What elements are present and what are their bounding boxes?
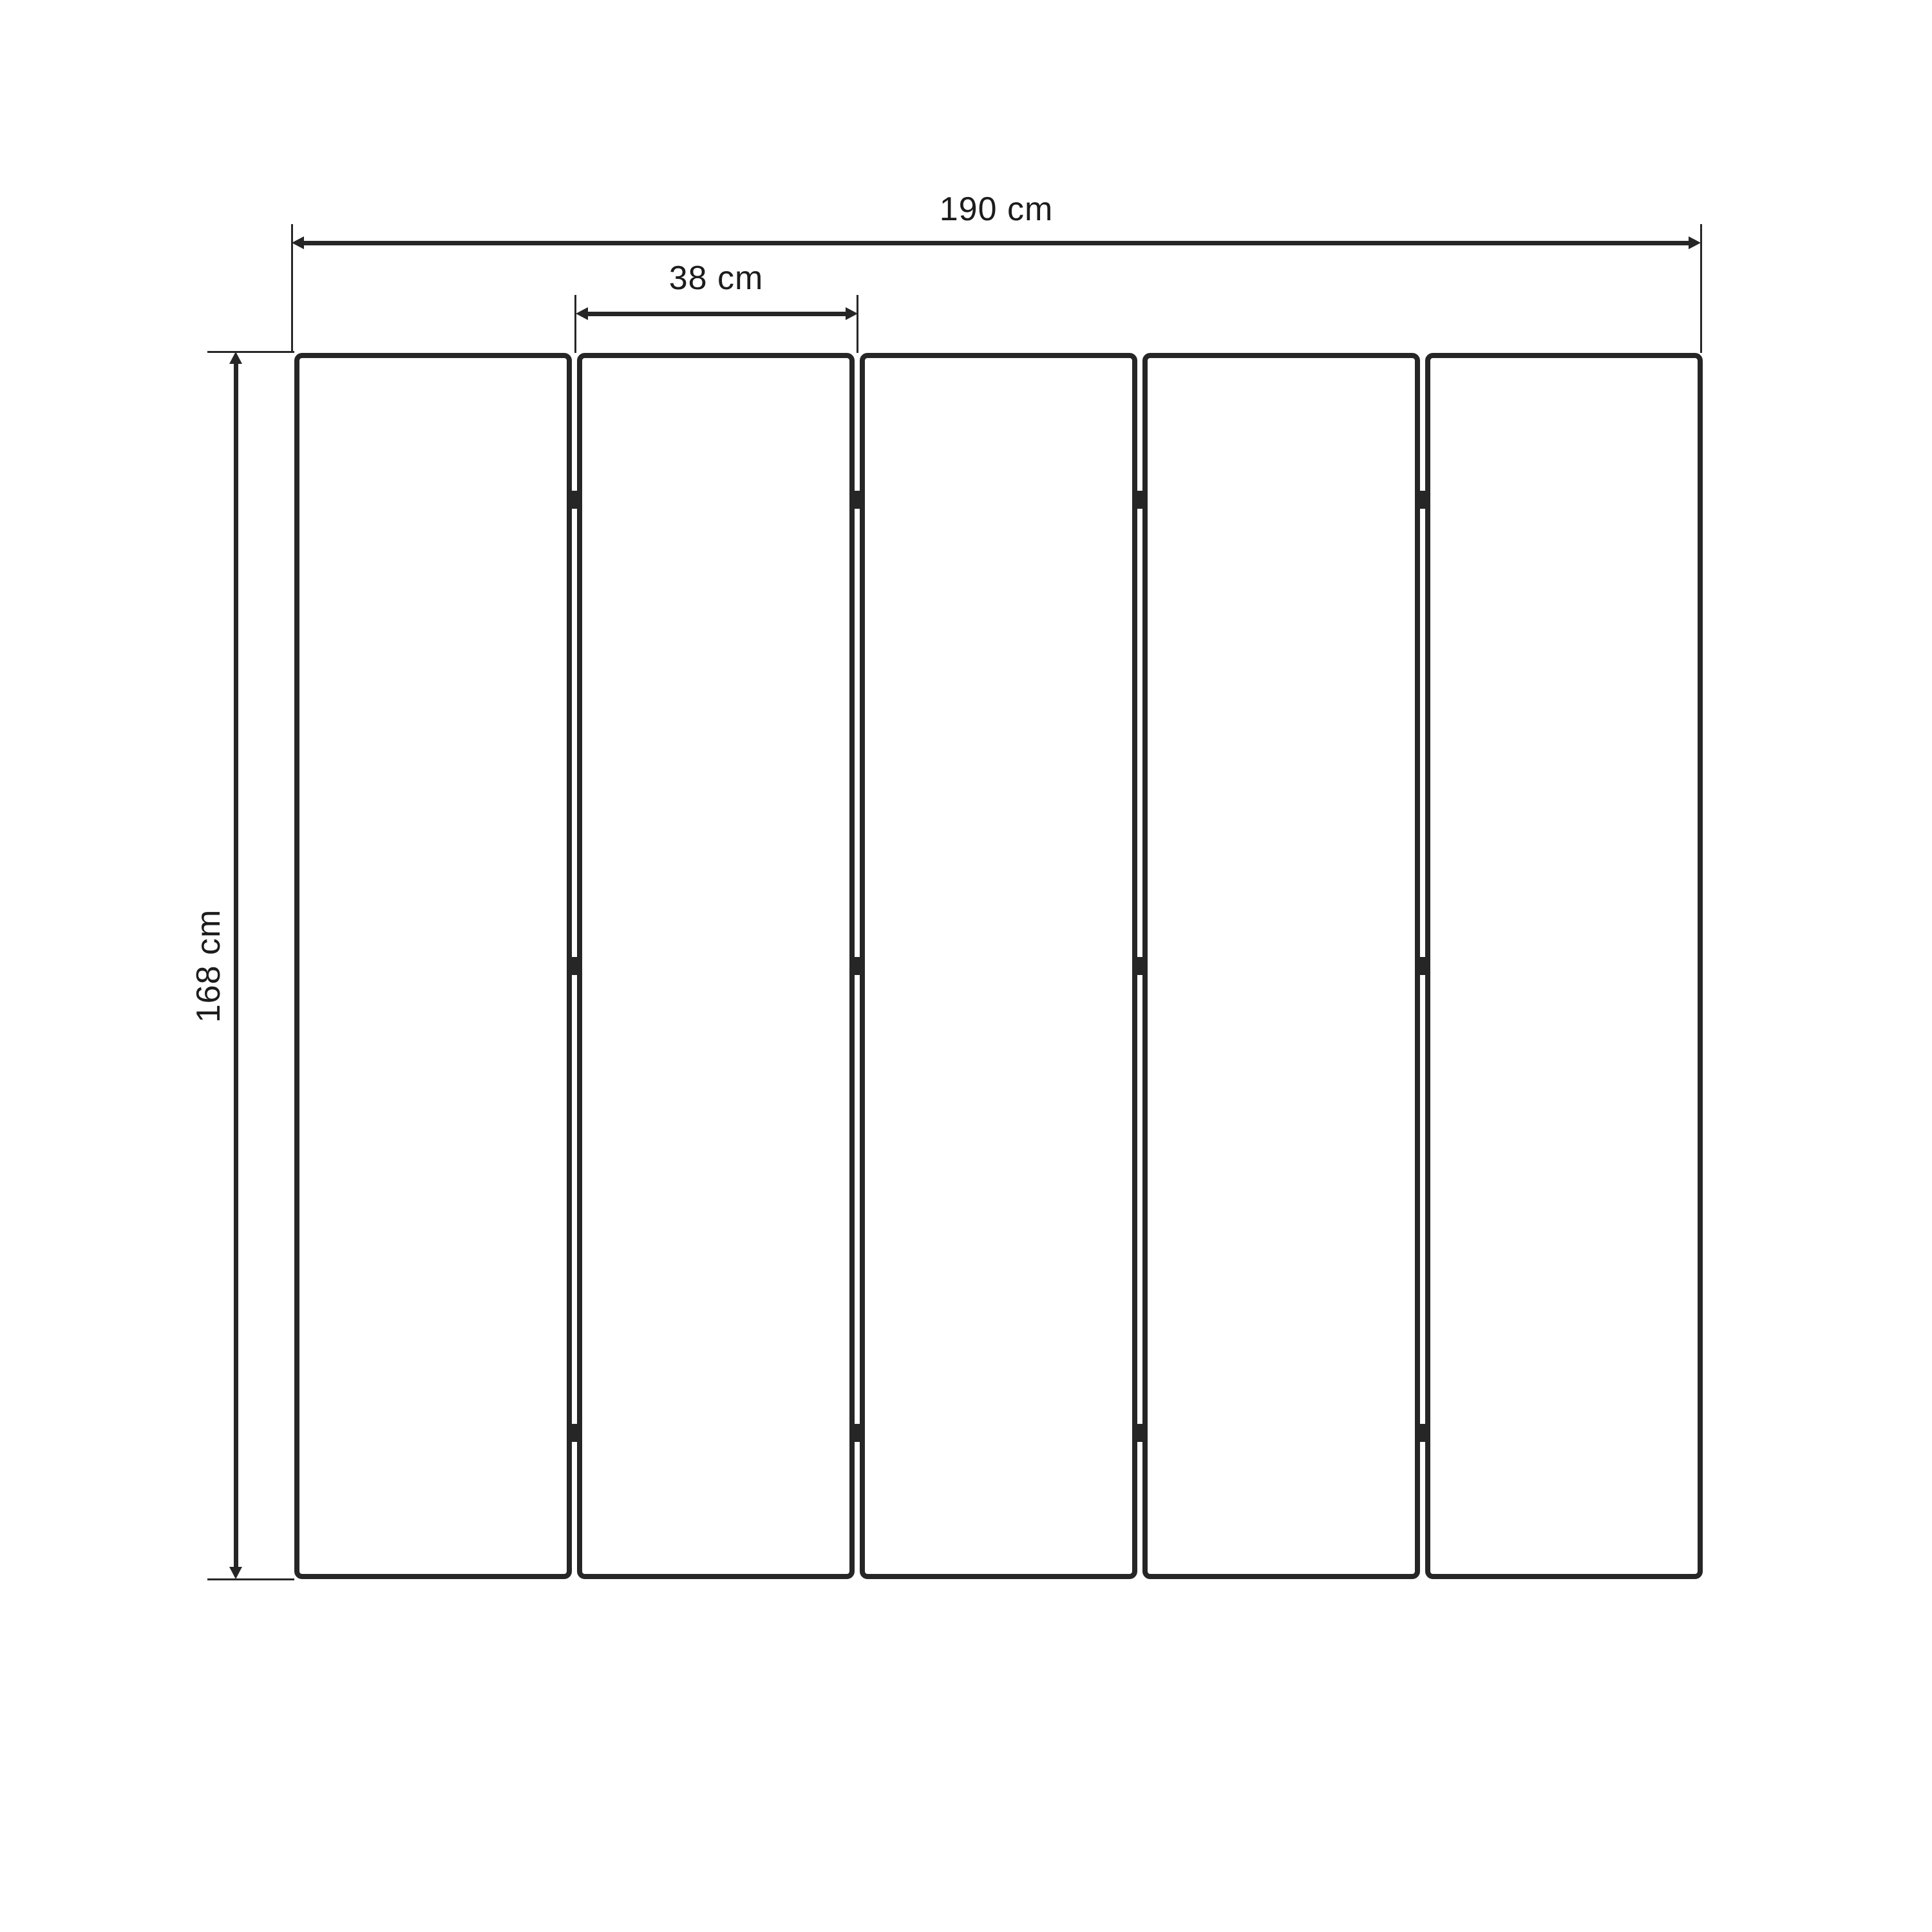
panel-width-extension-line-left [574,295,576,353]
panel-width-dimension-label: 38 cm [669,261,764,295]
hinge-gap4-2 [1418,957,1427,975]
panel-width-extension-line-right [857,295,858,353]
hinge-gap1-3 [570,1424,579,1442]
hinge-gap3-1 [1135,491,1144,509]
arrow-left-icon [576,307,588,320]
total-width-dimension-label: 190 cm [940,193,1054,226]
height-extension-line-top [207,351,294,353]
panel-2 [577,353,855,1579]
hinge-gap4-3 [1418,1424,1427,1442]
hinge-gap2-1 [853,491,862,509]
height-dimension-line [234,362,238,1569]
height-extension-line-bottom [207,1578,294,1580]
arrow-left-icon [292,236,304,249]
arrow-right-icon [1689,236,1701,249]
height-dimension-label: 168 cm [192,909,225,1023]
panel-5 [1425,353,1703,1579]
panel-width-dimension-line [586,312,846,316]
panel-4 [1142,353,1420,1579]
hinge-gap1-1 [570,491,579,509]
arrow-down-icon [229,1567,242,1579]
hinge-gap1-2 [570,957,579,975]
panel-1 [294,353,572,1579]
arrow-right-icon [846,307,858,320]
dimension-drawing-canvas: 190 cm 38 cm 168 cm [0,0,1932,1932]
arrow-up-icon [229,352,242,364]
panel-3 [860,353,1137,1579]
hinge-gap2-2 [853,957,862,975]
hinge-gap3-3 [1135,1424,1144,1442]
total-width-dimension-line [303,241,1692,245]
hinge-gap3-2 [1135,957,1144,975]
hinge-gap4-1 [1418,491,1427,509]
hinge-gap2-3 [853,1424,862,1442]
